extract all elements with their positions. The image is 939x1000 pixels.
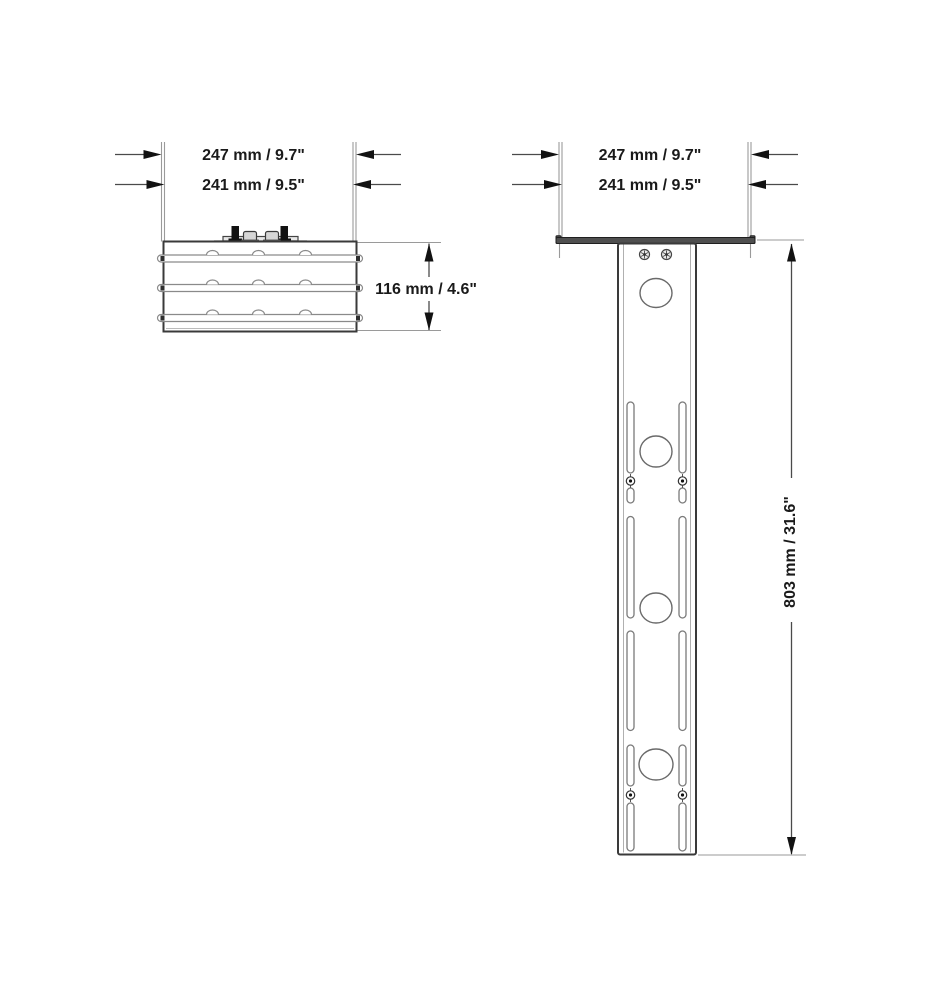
torx-screw-icon — [662, 250, 672, 260]
clip-bump — [300, 310, 312, 314]
cable-hole — [640, 593, 672, 623]
cable-hole — [640, 279, 672, 308]
arrow-up-icon — [787, 244, 796, 262]
front-width-inner-label: 241 mm / 9.5" — [599, 177, 702, 194]
bracket-column — [618, 244, 696, 855]
side-height-dimension: 116 mm / 4.6" — [358, 243, 477, 331]
bracket-body-side — [158, 242, 363, 332]
cable-hole — [640, 436, 672, 467]
front-height-label: 803 mm / 31.6" — [782, 496, 799, 608]
clip-bump — [253, 310, 265, 314]
mounting-slot — [679, 488, 686, 503]
clip-bump — [207, 251, 219, 256]
mounting-slot — [679, 402, 686, 473]
arrow-down-icon — [425, 313, 434, 331]
side-width-inner-label: 241 mm / 9.5" — [202, 177, 305, 194]
clip-bump — [253, 280, 265, 285]
clip-bump — [207, 310, 219, 314]
side-height-label: 116 mm / 4.6" — [375, 281, 477, 298]
torx-screw-icon — [640, 250, 650, 260]
arrow-down-icon — [787, 837, 796, 855]
front-width-outer-label: 247 mm / 9.7" — [599, 147, 702, 164]
arrow-right-icon — [144, 150, 162, 159]
bracket-side-view: 247 mm / 9.7" 241 mm / 9.5" — [115, 142, 477, 332]
clip-bump — [207, 280, 219, 285]
mounting-slot — [627, 631, 634, 731]
side-width-outer-label: 247 mm / 9.7" — [202, 147, 305, 164]
arrow-left-icon — [751, 150, 769, 159]
rail — [158, 285, 363, 292]
ceiling-attachment-hardware — [214, 226, 307, 243]
mounting-slot — [627, 402, 634, 473]
rail — [158, 255, 363, 262]
mounting-slot — [627, 517, 634, 619]
mounting-slot — [627, 745, 634, 786]
arrow-right-icon — [541, 150, 559, 159]
clip-bump — [300, 251, 312, 256]
rail — [158, 315, 363, 322]
technical-drawing-canvas: 247 mm / 9.7" 241 mm / 9.5" — [0, 0, 939, 1000]
arrow-left-icon — [356, 150, 374, 159]
bracket-front-view: 247 mm / 9.7" 241 mm / 9.5" — [512, 142, 806, 855]
mounting-slot — [679, 745, 686, 786]
mounting-slot — [679, 803, 686, 851]
front-height-dimension: 803 mm / 31.6" — [698, 240, 806, 855]
cable-hole — [639, 749, 673, 780]
mounting-slot — [679, 631, 686, 731]
clip-bump — [253, 251, 265, 256]
mounting-slot — [627, 488, 634, 503]
mounting-slot — [627, 803, 634, 851]
clip-bump — [300, 280, 312, 285]
mounting-slot — [679, 517, 686, 619]
arrow-up-icon — [425, 244, 434, 262]
